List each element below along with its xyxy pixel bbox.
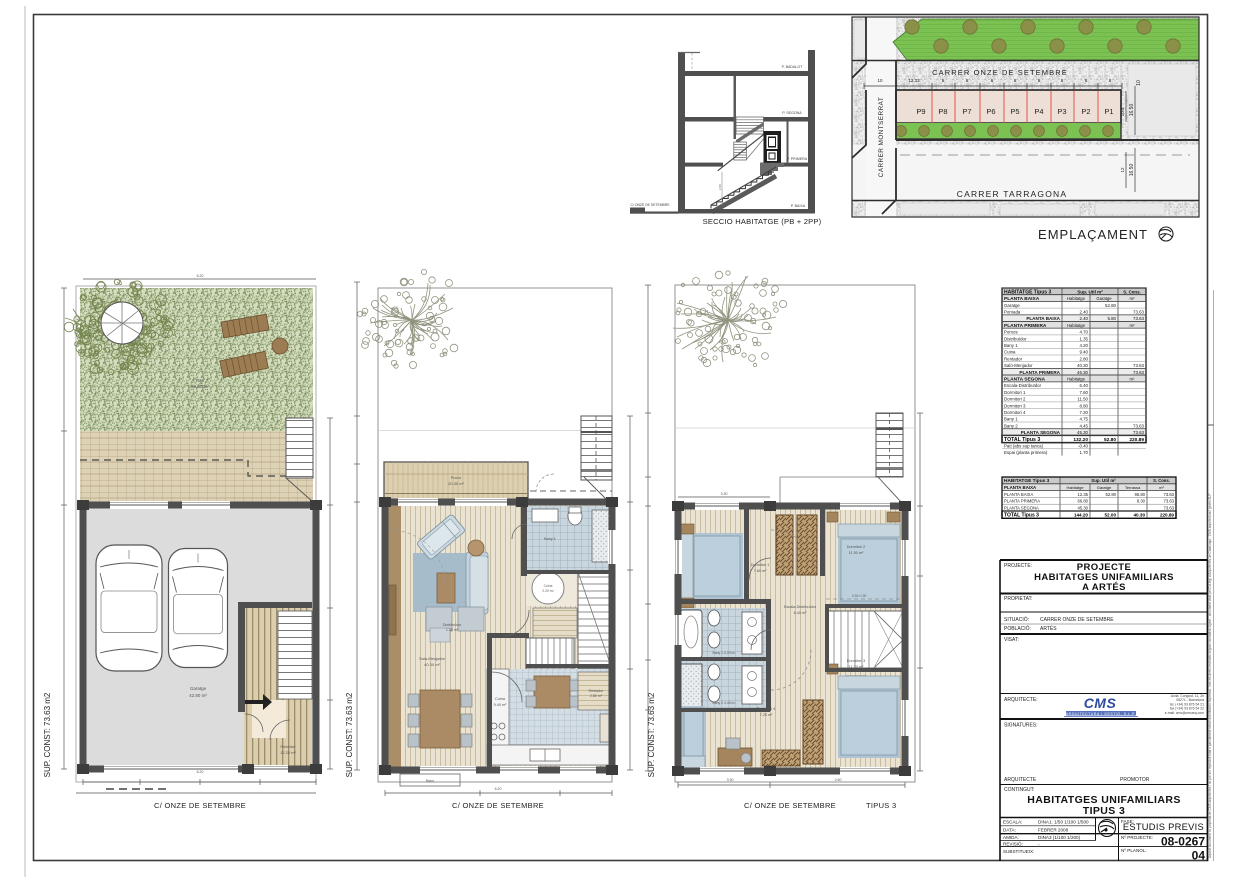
svg-text:Distribuïdor: Distribuïdor [1004, 336, 1027, 341]
svg-text:10.4: 10.4 [1120, 107, 1125, 116]
svg-text:42.80 m²: 42.80 m² [189, 693, 207, 698]
svg-text:10: 10 [1136, 80, 1142, 86]
svg-text:S. Cons.: S. Cons. [1123, 289, 1141, 294]
svg-text:Saló-Menjador: Saló-Menjador [1004, 363, 1033, 368]
svg-text:C/ ONZE DE SETEMBRE: C/ ONZE DE SETEMBRE [631, 203, 671, 207]
svg-text:Rebedor: Rebedor [280, 744, 296, 749]
svg-text:2.80 m²: 2.80 m² [590, 694, 603, 698]
svg-text:10: 10 [877, 78, 883, 83]
svg-text:Bany 1: Bany 1 [1004, 417, 1018, 422]
svg-text:8.30: 8.30 [1137, 499, 1146, 504]
svg-text:Garatge: Garatge [1004, 303, 1020, 308]
svg-text:Pati: Pati [196, 378, 204, 383]
svg-text:P. SEGONA: P. SEGONA [782, 111, 802, 115]
svg-text:11.50 m²: 11.50 m² [849, 551, 864, 555]
svg-text:Bany 1 4.20 m²: Bany 1 4.20 m² [713, 651, 737, 655]
svg-text:Bany 2 4.45 m²: Bany 2 4.45 m² [713, 701, 737, 705]
svg-text:ARQUITECTE:: ARQUITECTE: [1004, 697, 1038, 703]
svg-text:Bany 1: Bany 1 [1004, 343, 1018, 348]
svg-text:PLANTA BAIXA: PLANTA BAIXA [1004, 485, 1037, 490]
svg-text:Rentador: Rentador [1004, 356, 1023, 361]
svg-text:2.20 m²: 2.20 m² [542, 589, 554, 593]
svg-text:6.20: 6.20 [197, 274, 204, 278]
svg-text:12.33: 12.33 [908, 78, 920, 83]
svg-text:C/ ONZE DE SETEMBRE: C/ ONZE DE SETEMBRE [452, 801, 544, 810]
svg-text:Terrassa: Terrassa [1125, 485, 1141, 490]
svg-text:Habitatge: Habitatge [1067, 323, 1086, 328]
svg-text:HABITATGE Tipus 3: HABITATGE Tipus 3 [1004, 478, 1050, 484]
svg-text:46.30: 46.30 [1077, 370, 1089, 375]
svg-text:P9: P9 [916, 107, 925, 116]
svg-text:m²: m² [1130, 296, 1135, 301]
svg-text:PLANTA PRIMERA: PLANTA PRIMERA [1019, 370, 1060, 375]
svg-text:CONTINGUT:: CONTINGUT: [1004, 787, 1035, 793]
svg-text:7.20 m²: 7.20 m² [760, 713, 774, 717]
svg-text:ARTÉS: ARTÉS [1040, 625, 1057, 632]
svg-text:Balcó: Balcó [426, 779, 435, 783]
svg-text:6.40 m²: 6.40 m² [794, 611, 808, 615]
svg-text:P5: P5 [1010, 107, 1019, 116]
svg-text:PLANTA SEGONA: PLANTA SEGONA [1021, 430, 1061, 435]
svg-text:4.45: 4.45 [1079, 423, 1088, 428]
svg-text:P4: P4 [1034, 107, 1043, 116]
svg-text:1.70: 1.70 [1079, 450, 1088, 455]
svg-text:P7: P7 [962, 107, 971, 116]
svg-text:16.50: 16.50 [1129, 164, 1135, 177]
svg-text:CARRER ONZE DE SETEMBRE: CARRER ONZE DE SETEMBRE [1040, 617, 1114, 623]
svg-text:52.00: 52.00 [1105, 512, 1117, 517]
svg-text:20.30 m²: 20.30 m² [448, 481, 464, 486]
svg-text:9.40: 9.40 [1079, 350, 1088, 355]
svg-text:PLANTA SEGONA: PLANTA SEGONA [1004, 505, 1039, 510]
svg-text:Bany 2: Bany 2 [1004, 423, 1018, 428]
svg-text:6.40: 6.40 [1079, 383, 1088, 388]
svg-text:ESTUDIS PREVIS: ESTUDIS PREVIS [1123, 822, 1204, 832]
svg-text:9.40 m²: 9.40 m² [494, 703, 508, 707]
svg-text:Dormitori 3: Dormitori 3 [1004, 403, 1026, 408]
svg-text:Bany 1: Bany 1 [544, 537, 556, 541]
svg-text:m²: m² [1130, 323, 1135, 328]
svg-text:ARQUITECTE: ARQUITECTE [1004, 777, 1037, 783]
svg-text:DINA3 (1/100 1/200): DINA3 (1/100 1/200) [1038, 835, 1081, 840]
svg-text:P. BADALOT: P. BADALOT [782, 65, 804, 69]
svg-text:08-0267: 08-0267 [1161, 835, 1205, 849]
svg-text:2.80: 2.80 [1079, 356, 1088, 361]
svg-text:Porxos: Porxos [1004, 330, 1018, 335]
svg-text:P. PRIMERA: P. PRIMERA [787, 157, 808, 161]
svg-text:Nº PLANOL:: Nº PLANOL: [1121, 848, 1147, 853]
svg-text:CARRER ONZE DE SETEMBRE: CARRER ONZE DE SETEMBRE [932, 68, 1068, 77]
svg-text:40.30: 40.30 [1134, 512, 1146, 517]
svg-text:Rentador: Rentador [589, 689, 605, 693]
svg-text:73.63: 73.63 [1133, 430, 1145, 435]
svg-text:PROPIETAT:: PROPIETAT: [1004, 596, 1032, 602]
svg-text:4.70: 4.70 [1079, 330, 1088, 335]
svg-text:6.20: 6.20 [197, 770, 204, 774]
svg-text:Dormitori 2: Dormitori 2 [1004, 397, 1026, 402]
svg-text:P3: P3 [1057, 107, 1066, 116]
svg-text:FEBRER 2008: FEBRER 2008 [1038, 828, 1069, 833]
svg-text:66.80: 66.80 [1078, 499, 1089, 504]
svg-text:DINA1: 1/50 1/100 1/500: DINA1: 1/50 1/100 1/500 [1038, 820, 1089, 825]
svg-text:P1: P1 [1104, 107, 1113, 116]
svg-text:Habitatge: Habitatge [1067, 296, 1086, 301]
svg-text:7.60 m²: 7.60 m² [754, 569, 768, 573]
svg-text:2.40: 2.40 [1079, 316, 1088, 321]
svg-text:04: 04 [1192, 849, 1206, 863]
svg-text:CARRER TARRAGONA: CARRER TARRAGONA [957, 189, 1068, 199]
svg-text:SUP. CONST: 73.63 m2: SUP. CONST: 73.63 m2 [647, 692, 656, 777]
svg-text:Pati (abs sup tanca): Pati (abs sup tanca) [1004, 444, 1044, 449]
svg-text:95.80: 95.80 [1135, 492, 1146, 497]
svg-text:1.35 m²: 1.35 m² [446, 628, 459, 632]
svg-text:Garatge: Garatge [190, 686, 207, 691]
svg-text:P6: P6 [986, 107, 995, 116]
svg-text:P2: P2 [1081, 107, 1090, 116]
svg-text:Sup. Util m²: Sup. Util m² [1091, 478, 1116, 483]
svg-text:SUBSTITUEIX:: SUBSTITUEIX: [1003, 849, 1034, 854]
svg-text:Cuina: Cuina [1004, 350, 1016, 355]
svg-text:Dormitori 2: Dormitori 2 [847, 545, 866, 549]
svg-text:45.30: 45.30 [1078, 505, 1089, 510]
svg-text:73.63: 73.63 [1133, 370, 1145, 375]
svg-text:16.50: 16.50 [1129, 104, 1135, 117]
svg-text:5.30×1.90: 5.30×1.90 [852, 594, 866, 598]
svg-text:P8: P8 [938, 107, 947, 116]
svg-text:EMPLAÇAMENT: EMPLAÇAMENT [1038, 227, 1148, 242]
svg-text:SITUACIÓ:: SITUACIÓ: [1004, 616, 1029, 623]
svg-text:Dormitori 3: Dormitori 3 [847, 659, 866, 663]
svg-text:4.20: 4.20 [1079, 343, 1088, 348]
svg-text:12.20 m²: 12.20 m² [280, 750, 296, 755]
svg-text:Porxo: Porxo [451, 475, 462, 480]
svg-text:m²: m² [1159, 485, 1164, 490]
svg-text:2.80: 2.80 [718, 184, 722, 190]
svg-text:Habitatge: Habitatge [1067, 377, 1086, 382]
svg-text:TIPUS 3: TIPUS 3 [866, 801, 896, 810]
svg-text:SECCIO HABITATGE (PB + 2PP): SECCIO HABITATGE (PB + 2PP) [703, 217, 822, 226]
svg-text:12: 12 [1120, 167, 1125, 173]
svg-text:POBLACIÓ:: POBLACIÓ: [1004, 625, 1031, 632]
svg-text:4.75: 4.75 [1079, 417, 1088, 422]
svg-text:73.63: 73.63 [1164, 505, 1175, 510]
svg-text:12.35: 12.35 [1078, 492, 1089, 497]
svg-text:7.20: 7.20 [1079, 410, 1088, 415]
svg-text:AMIDA:: AMIDA: [1003, 835, 1019, 840]
svg-text:CMS: CMS [1084, 695, 1117, 711]
svg-text:73.63: 73.63 [1133, 310, 1145, 315]
svg-text:Nº PROJECTE:: Nº PROJECTE: [1121, 835, 1153, 840]
svg-text:52.80: 52.80 [1106, 492, 1117, 497]
svg-text:45.30: 45.30 [1077, 430, 1089, 435]
svg-text:5.80: 5.80 [1107, 316, 1116, 321]
svg-text:52.80: 52.80 [1105, 303, 1117, 308]
svg-text:3.30: 3.30 [721, 492, 728, 496]
svg-text:11.50: 11.50 [1077, 397, 1088, 402]
svg-text:CARRER MONTSERRAT: CARRER MONTSERRAT [878, 97, 885, 177]
svg-text:40.30: 40.30 [1077, 363, 1089, 368]
svg-text:2.40: 2.40 [1079, 310, 1088, 315]
svg-text:ESCALA:: ESCALA: [1003, 820, 1022, 825]
svg-text:Distribuïdor: Distribuïdor [443, 623, 462, 627]
svg-text:Sala-Menjador: Sala-Menjador [419, 656, 446, 661]
svg-text:Garatge: Garatge [1096, 296, 1112, 301]
svg-text:73.63: 73.63 [1164, 492, 1175, 497]
svg-text:73.63: 73.63 [1133, 363, 1145, 368]
svg-text:73.63: 73.63 [1133, 316, 1145, 321]
svg-text:P. BAIXA: P. BAIXA [791, 204, 806, 208]
svg-text:VISAT:: VISAT: [1004, 637, 1019, 643]
svg-text:TIPUS 3: TIPUS 3 [1083, 805, 1125, 817]
svg-text:Aquest document es propietat d: Aquest document es propietat de CMS arqu… [1208, 494, 1212, 858]
svg-text:PROMOTOR: PROMOTOR [1120, 777, 1150, 783]
svg-text:-0.40: -0.40 [1078, 444, 1089, 449]
svg-text:S. Cons.: S. Cons. [1153, 478, 1170, 483]
svg-text:REVISIÓ:: REVISIÓ: [1003, 840, 1023, 846]
svg-text:1.35: 1.35 [1079, 336, 1088, 341]
svg-text:220.89: 220.89 [1160, 512, 1174, 517]
svg-text:3.30: 3.30 [727, 778, 734, 782]
svg-text:Porxada: Porxada [1004, 310, 1021, 315]
svg-text:Escala-Distribuïdor: Escala-Distribuïdor [784, 605, 817, 609]
svg-text:SUP. CONST: 73.63 m2: SUP. CONST: 73.63 m2 [345, 692, 354, 777]
svg-text:Garatge: Garatge [1097, 485, 1112, 490]
svg-text:Cuina: Cuina [544, 584, 553, 588]
svg-text:A ARTÉS: A ARTÉS [1082, 582, 1126, 593]
svg-text:Habitatge: Habitatge [1066, 485, 1084, 490]
svg-text:SIGNATURES:: SIGNATURES: [1004, 723, 1038, 729]
svg-text:Dormitori 1: Dormitori 1 [1004, 390, 1026, 395]
svg-text:6.20: 6.20 [495, 787, 502, 791]
svg-text:TOTAL Tipus 3: TOTAL Tipus 3 [1004, 512, 1039, 518]
svg-text:e-mail: cms@cmsarq.com: e-mail: cms@cmsarq.com [1165, 711, 1204, 715]
svg-text:PROJECTE:: PROJECTE: [1004, 563, 1032, 569]
svg-text:PLANTA BAIXA: PLANTA BAIXA [1004, 492, 1033, 497]
svg-text:8.80: 8.80 [1079, 403, 1088, 408]
svg-text:7.60: 7.60 [1079, 390, 1088, 395]
svg-text:m²: m² [1130, 377, 1135, 382]
svg-text:Dormitori 4: Dormitori 4 [1004, 410, 1026, 415]
svg-text:73.63: 73.63 [1133, 423, 1145, 428]
svg-text:DATA:: DATA: [1003, 828, 1016, 833]
svg-text:SUP. CONST: 73.63 m2: SUP. CONST: 73.63 m2 [43, 692, 52, 777]
svg-text:Escala-Distribuïdor: Escala-Distribuïdor [1004, 383, 1042, 388]
svg-text:C/ ONZE DE SETEMBRE: C/ ONZE DE SETEMBRE [154, 801, 246, 810]
svg-text:ARQUITECTURA I GESTIÓ, S.L.P.: ARQUITECTURA I GESTIÓ, S.L.P. [1066, 711, 1136, 716]
svg-text:C/ ONZE DE SETEMBRE: C/ ONZE DE SETEMBRE [744, 801, 836, 810]
svg-text:Espai (planta primera): Espai (planta primera) [1004, 450, 1048, 455]
svg-text:Cuina: Cuina [495, 697, 506, 701]
svg-text:Sup. Util m²: Sup. Util m² [1077, 289, 1103, 294]
svg-text:144.20: 144.20 [1074, 512, 1088, 517]
svg-text:73.63: 73.63 [1164, 499, 1175, 504]
svg-text:40.30 m²: 40.30 m² [424, 662, 440, 667]
svg-text:PLANTA PRIMERA: PLANTA PRIMERA [1004, 499, 1040, 504]
svg-text:95.80 m²: 95.80 m² [191, 384, 209, 389]
svg-text:PLANTA BAIXA: PLANTA BAIXA [1026, 316, 1060, 321]
svg-text:2.60: 2.60 [835, 778, 842, 782]
